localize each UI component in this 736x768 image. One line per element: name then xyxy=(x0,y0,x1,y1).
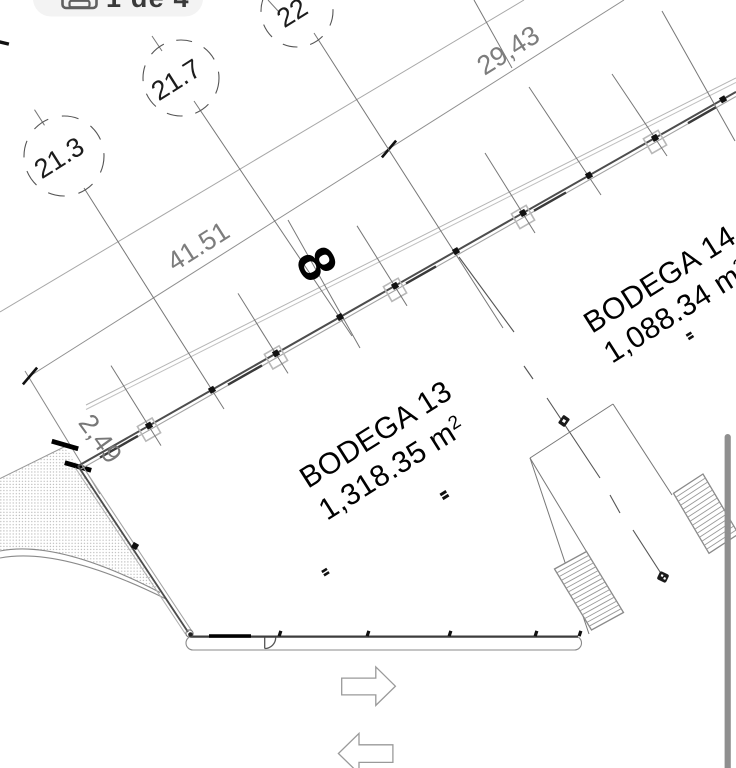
svg-text:1 de 4: 1 de 4 xyxy=(106,0,190,13)
